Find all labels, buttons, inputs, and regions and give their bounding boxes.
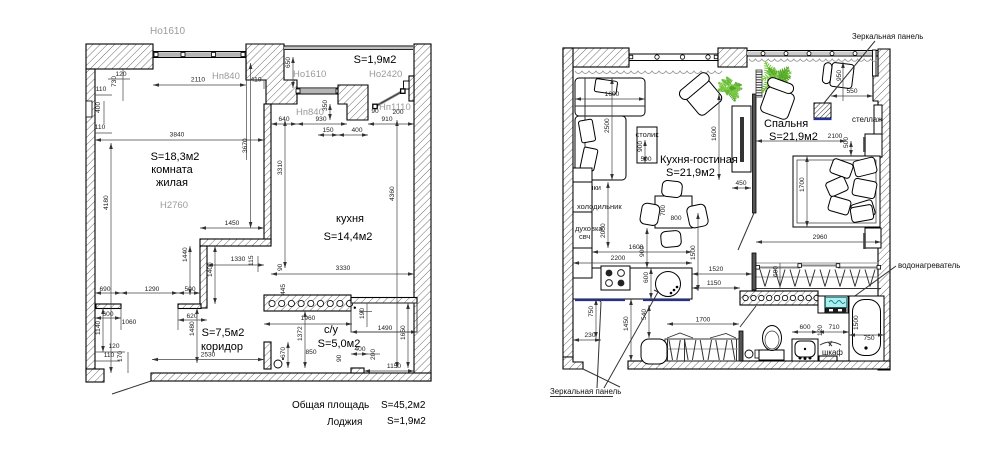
svg-text:500: 500 (640, 156, 651, 163)
svg-text:445: 445 (280, 284, 287, 295)
svg-text:1450: 1450 (623, 316, 630, 331)
svg-text:400: 400 (354, 346, 365, 353)
svg-text:Н2760: Н2760 (160, 200, 188, 211)
svg-text:комната: комната (151, 164, 193, 176)
svg-text:2500: 2500 (604, 118, 611, 133)
svg-text:S=7,5м2: S=7,5м2 (202, 327, 245, 339)
svg-text:750: 750 (588, 306, 595, 317)
svg-text:водонагреватель: водонагреватель (898, 261, 960, 270)
svg-text:640: 640 (278, 116, 289, 123)
svg-text:кухня: кухня (336, 213, 364, 225)
svg-text:170: 170 (117, 351, 124, 362)
svg-text:2100: 2100 (828, 133, 843, 140)
svg-text:1150: 1150 (707, 280, 722, 287)
svg-text:3310: 3310 (277, 160, 284, 175)
svg-text:3670: 3670 (242, 138, 249, 153)
svg-text:столик: столик (636, 130, 660, 139)
svg-text:1150: 1150 (387, 363, 402, 370)
svg-text:1700: 1700 (799, 177, 806, 192)
svg-text:710: 710 (828, 324, 839, 331)
svg-text:1490: 1490 (378, 325, 393, 332)
svg-text:600: 600 (799, 324, 810, 331)
svg-text:стеллаж: стеллаж (852, 115, 883, 124)
svg-text:230: 230 (584, 332, 595, 339)
svg-text:110: 110 (95, 124, 106, 131)
svg-text:600: 600 (643, 272, 650, 283)
svg-text:410: 410 (250, 77, 261, 84)
svg-text:730: 730 (111, 76, 118, 87)
svg-text:120: 120 (108, 343, 119, 350)
svg-text:850: 850 (305, 349, 316, 356)
svg-text:Зеркальная панель: Зеркальная панель (550, 387, 621, 396)
svg-text:150: 150 (322, 127, 333, 134)
svg-text:90: 90 (277, 263, 284, 271)
svg-text:3840: 3840 (170, 132, 185, 139)
svg-text:1480: 1480 (189, 321, 196, 336)
svg-text:910: 910 (381, 116, 392, 123)
svg-text:с/у: с/у (324, 324, 339, 336)
svg-text:Зеркальная панель: Зеркальная панель (852, 32, 923, 41)
svg-text:холодильник: холодильник (577, 202, 622, 211)
svg-text:1500: 1500 (853, 315, 860, 330)
svg-text:1330: 1330 (231, 256, 246, 263)
svg-text:540: 540 (641, 309, 648, 320)
svg-text:1440: 1440 (182, 247, 189, 262)
svg-text:3330: 3330 (336, 265, 351, 272)
svg-text:400: 400 (351, 127, 362, 134)
svg-text:930: 930 (315, 116, 326, 123)
svg-text:2960: 2960 (813, 234, 828, 241)
svg-text:190: 190 (359, 308, 366, 319)
svg-text:600: 600 (773, 266, 780, 277)
svg-text:S=45,2м2: S=45,2м2 (381, 400, 426, 411)
svg-text:90: 90 (336, 354, 343, 362)
svg-text:500: 500 (843, 137, 850, 148)
svg-text:4180: 4180 (103, 195, 110, 210)
svg-text:110: 110 (96, 86, 107, 93)
svg-text:120: 120 (817, 325, 824, 336)
svg-text:шкаф: шкаф (822, 348, 843, 357)
svg-text:Лоджия: Лоджия (327, 417, 362, 428)
svg-text:1372: 1372 (297, 326, 304, 341)
svg-text:S=14,4м2: S=14,4м2 (324, 231, 373, 243)
svg-text:90: 90 (371, 108, 379, 115)
svg-text:1700: 1700 (696, 317, 711, 324)
svg-text:Но1610: Но1610 (293, 69, 326, 80)
svg-text:2110: 2110 (191, 77, 206, 84)
svg-text:1140: 1140 (95, 320, 102, 335)
svg-text:Спальня: Спальня (764, 118, 808, 130)
svg-text:1290: 1290 (145, 286, 160, 293)
svg-text:900: 900 (639, 246, 646, 257)
svg-text:Нп840: Нп840 (212, 71, 240, 82)
svg-text:450: 450 (735, 180, 746, 187)
svg-text:1500: 1500 (690, 245, 697, 260)
svg-text:4360: 4360 (389, 186, 396, 201)
svg-text:S=18,3м2: S=18,3м2 (151, 151, 200, 163)
svg-text:400: 400 (95, 102, 102, 113)
svg-text:750: 750 (863, 335, 874, 342)
svg-text:S=1,9м2: S=1,9м2 (354, 54, 397, 66)
svg-text:2050: 2050 (600, 223, 607, 238)
svg-text:115: 115 (248, 255, 255, 266)
svg-text:900: 900 (637, 141, 644, 152)
svg-text:690: 690 (99, 286, 110, 293)
svg-text:Общая площадь: Общая площадь (292, 399, 369, 411)
svg-text:550: 550 (846, 88, 857, 95)
svg-text:Но1610: Но1610 (150, 26, 185, 37)
svg-text:950: 950 (836, 70, 843, 81)
svg-text:S=1,9м2: S=1,9м2 (387, 416, 426, 427)
svg-text:1520: 1520 (709, 266, 724, 273)
svg-text:Кухня-гостиная: Кухня-гостиная (660, 154, 738, 166)
svg-text:2530: 2530 (201, 352, 216, 359)
svg-text:650: 650 (285, 57, 292, 68)
svg-text:1060: 1060 (122, 319, 137, 326)
svg-text:200: 200 (392, 109, 403, 116)
svg-text:1450: 1450 (225, 220, 240, 227)
svg-text:жилая: жилая (156, 177, 188, 189)
svg-text:1400: 1400 (207, 262, 214, 277)
svg-text:110: 110 (104, 352, 115, 359)
svg-text:1650: 1650 (400, 325, 407, 340)
svg-text:620: 620 (186, 313, 197, 320)
svg-text:Но2420: Но2420 (369, 69, 402, 80)
svg-text:670: 670 (280, 347, 287, 358)
svg-text:1960: 1960 (301, 315, 316, 322)
svg-text:S=21,9м2: S=21,9м2 (666, 167, 715, 179)
svg-text:700: 700 (660, 205, 667, 216)
svg-text:1600: 1600 (711, 126, 718, 141)
svg-text:350: 350 (322, 100, 329, 111)
svg-text:2200: 2200 (611, 255, 626, 262)
svg-text:свч: свч (579, 232, 590, 241)
svg-text:800: 800 (670, 215, 681, 222)
